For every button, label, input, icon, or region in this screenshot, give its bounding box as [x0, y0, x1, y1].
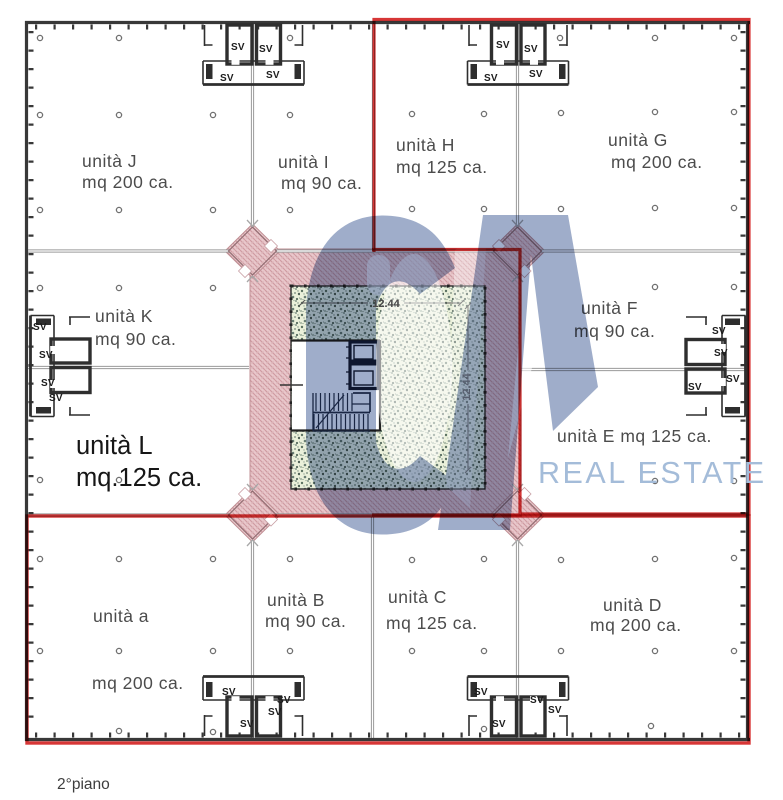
svg-text:mq 90 ca.: mq 90 ca.	[95, 329, 176, 349]
svg-text:mq 90 ca.: mq 90 ca.	[281, 173, 362, 193]
svg-text:unità B: unità B	[267, 590, 325, 610]
svg-text:SV: SV	[726, 374, 740, 385]
svg-text:SV: SV	[231, 42, 245, 53]
svg-text:SV: SV	[259, 44, 273, 55]
svg-text:SV: SV	[529, 69, 543, 80]
svg-text:unità D: unità D	[603, 595, 662, 615]
svg-text:SV: SV	[39, 350, 53, 361]
svg-text:unità L: unità L	[76, 432, 153, 460]
svg-text:unità I: unità I	[278, 152, 329, 172]
svg-text:mq 200 ca.: mq 200 ca.	[82, 172, 174, 192]
svg-text:unità K: unità K	[95, 306, 153, 326]
svg-text:mq 125 ca.: mq 125 ca.	[386, 613, 478, 633]
svg-text:mq 200 ca.: mq 200 ca.	[611, 152, 703, 172]
svg-text:mq 200 ca.: mq 200 ca.	[590, 615, 682, 635]
svg-text:SV: SV	[530, 695, 544, 706]
svg-text:REAL ESTATE: REAL ESTATE	[538, 456, 767, 490]
svg-text:SV: SV	[240, 719, 254, 730]
svg-text:SV: SV	[474, 687, 488, 698]
svg-text:unità C: unità C	[388, 587, 447, 607]
svg-text:unità J: unità J	[82, 151, 137, 171]
svg-text:SV: SV	[712, 326, 726, 337]
svg-text:SV: SV	[688, 382, 702, 393]
svg-text:SV: SV	[277, 695, 291, 706]
svg-text:12.44: 12.44	[372, 298, 400, 310]
svg-text:mq 125 ca.: mq 125 ca.	[396, 157, 488, 177]
svg-text:unità F: unità F	[581, 298, 638, 318]
svg-text:mq 200 ca.: mq 200 ca.	[92, 673, 184, 693]
svg-text:SV: SV	[714, 348, 728, 359]
svg-text:unità E mq 125 ca.: unità E mq 125 ca.	[557, 426, 712, 446]
svg-text:SV: SV	[222, 687, 236, 698]
svg-text:mq 90 ca.: mq 90 ca.	[265, 611, 346, 631]
svg-text:SV: SV	[33, 322, 47, 333]
svg-text:mq.125 ca.: mq.125 ca.	[76, 464, 202, 492]
svg-text:unità G: unità G	[608, 130, 668, 150]
svg-text:2°piano: 2°piano	[57, 776, 110, 793]
svg-text:SV: SV	[41, 378, 55, 389]
svg-text:SV: SV	[484, 73, 498, 84]
svg-text:SV: SV	[496, 40, 510, 51]
svg-text:SV: SV	[220, 73, 234, 84]
svg-text:SV: SV	[49, 393, 63, 404]
svg-text:unità H: unità H	[396, 135, 455, 155]
svg-text:SV: SV	[548, 705, 562, 716]
svg-text:unità a: unità a	[93, 606, 149, 626]
svg-text:SV: SV	[492, 719, 506, 730]
svg-text:SV: SV	[266, 70, 280, 81]
svg-text:SV: SV	[524, 44, 538, 55]
svg-text:SV: SV	[268, 707, 282, 718]
